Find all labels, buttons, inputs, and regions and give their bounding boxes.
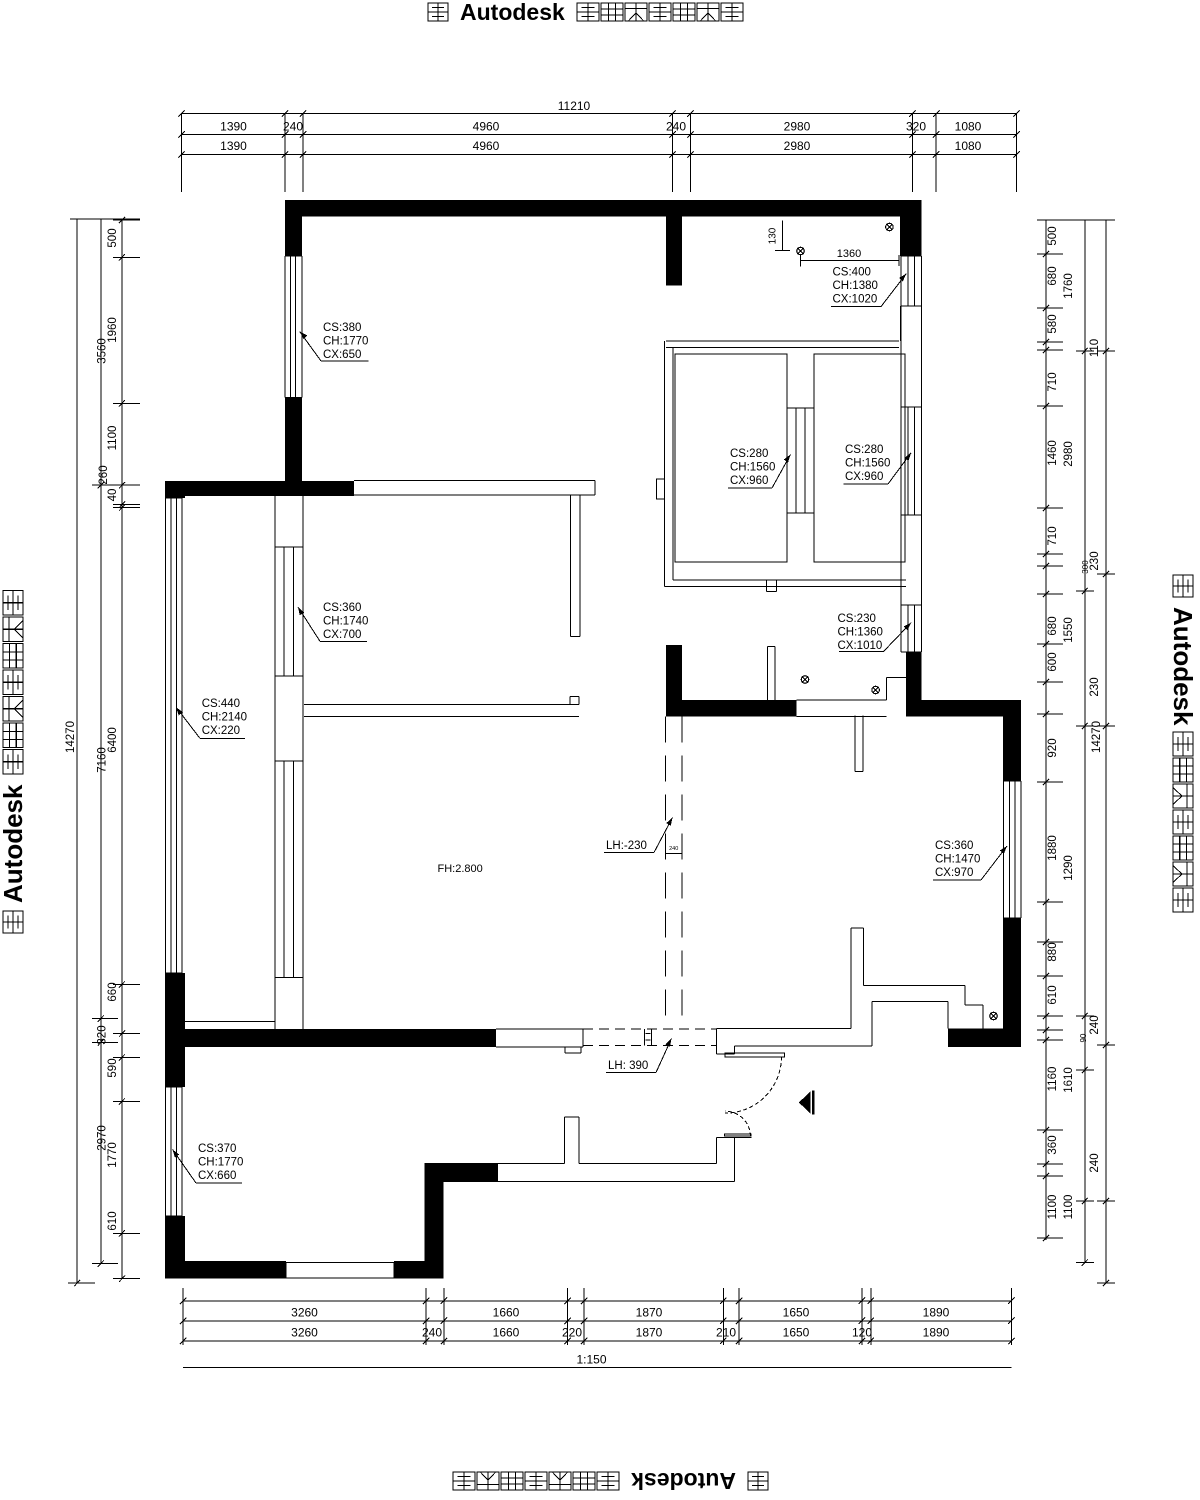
svg-text:1890: 1890 xyxy=(923,1326,950,1340)
svg-text:6400: 6400 xyxy=(107,727,119,753)
svg-text:4960: 4960 xyxy=(473,139,500,153)
svg-text:90: 90 xyxy=(1079,1033,1088,1042)
svg-text:320: 320 xyxy=(906,120,926,134)
svg-text:600: 600 xyxy=(1047,652,1059,671)
svg-text:2980: 2980 xyxy=(1063,441,1075,467)
svg-text:Autodesk: Autodesk xyxy=(631,1468,736,1494)
svg-text:CS:400: CS:400 xyxy=(833,267,871,279)
svg-text:1650: 1650 xyxy=(783,1306,810,1320)
svg-text:660: 660 xyxy=(107,982,119,1001)
svg-text:CS:360: CS:360 xyxy=(323,602,361,614)
svg-text:FH:2.800: FH:2.800 xyxy=(438,863,483,875)
svg-text:710: 710 xyxy=(1047,526,1059,545)
svg-text:CH:1470: CH:1470 xyxy=(935,853,980,865)
svg-text:1870: 1870 xyxy=(636,1326,663,1340)
svg-text:CX:960: CX:960 xyxy=(730,475,768,487)
svg-text:1080: 1080 xyxy=(955,139,982,153)
svg-text:230: 230 xyxy=(1089,551,1101,570)
svg-text:3260: 3260 xyxy=(291,1326,318,1340)
svg-text:CH:1740: CH:1740 xyxy=(323,615,368,627)
svg-text:CH:1560: CH:1560 xyxy=(845,457,890,469)
svg-text:3560: 3560 xyxy=(97,338,109,364)
svg-text:CX:220: CX:220 xyxy=(202,725,240,737)
svg-text:2970: 2970 xyxy=(97,1125,109,1151)
svg-text:130: 130 xyxy=(768,227,779,244)
svg-text:CH:1560: CH:1560 xyxy=(730,461,775,473)
svg-text:1550: 1550 xyxy=(1063,617,1075,643)
svg-text:1890: 1890 xyxy=(923,1306,950,1320)
svg-text:2980: 2980 xyxy=(784,120,811,134)
svg-text:1880: 1880 xyxy=(1047,835,1059,861)
svg-text:CS:380: CS:380 xyxy=(323,322,361,334)
svg-text:CS:440: CS:440 xyxy=(202,698,240,710)
svg-text:590: 590 xyxy=(107,1058,119,1077)
svg-text:240: 240 xyxy=(422,1326,442,1340)
svg-text:CS:360: CS:360 xyxy=(935,840,973,852)
svg-text:320: 320 xyxy=(97,1025,109,1044)
svg-text:240: 240 xyxy=(1089,1015,1101,1034)
svg-text:920: 920 xyxy=(1047,738,1059,757)
svg-text:1660: 1660 xyxy=(493,1326,520,1340)
svg-text:1650: 1650 xyxy=(783,1326,810,1340)
svg-text:CS:230: CS:230 xyxy=(838,613,876,625)
svg-text:7160: 7160 xyxy=(97,747,109,773)
svg-text:40: 40 xyxy=(107,489,119,502)
svg-text:14270: 14270 xyxy=(1091,721,1103,753)
svg-text:CX:960: CX:960 xyxy=(845,471,883,483)
svg-text:LH: 390: LH: 390 xyxy=(608,1060,648,1072)
svg-text:240: 240 xyxy=(1089,1153,1101,1172)
svg-text:500: 500 xyxy=(107,228,119,247)
svg-text:CX:1020: CX:1020 xyxy=(833,293,878,305)
svg-text:240: 240 xyxy=(666,120,686,134)
svg-text:1770: 1770 xyxy=(107,1142,119,1168)
svg-text:3260: 3260 xyxy=(291,1306,318,1320)
svg-text:110: 110 xyxy=(1089,339,1101,357)
svg-text:14270: 14270 xyxy=(65,721,77,753)
svg-text:680: 680 xyxy=(1047,616,1059,635)
svg-text:CX:650: CX:650 xyxy=(323,349,361,361)
svg-text:LH:-230: LH:-230 xyxy=(606,840,647,852)
svg-text:1160: 1160 xyxy=(1047,1067,1059,1092)
svg-text:1290: 1290 xyxy=(1063,855,1075,881)
svg-text:580: 580 xyxy=(1047,314,1059,333)
svg-text:260: 260 xyxy=(98,465,110,484)
svg-text:Autodesk: Autodesk xyxy=(1168,607,1198,726)
svg-text:4960: 4960 xyxy=(473,120,500,134)
svg-text:1080: 1080 xyxy=(955,120,982,134)
svg-text:CX:700: CX:700 xyxy=(323,629,361,641)
svg-text:1100: 1100 xyxy=(107,426,119,451)
svg-text:1390: 1390 xyxy=(220,139,247,153)
svg-text:CS:280: CS:280 xyxy=(730,448,768,460)
svg-text:2980: 2980 xyxy=(784,139,811,153)
svg-text:CH:2140: CH:2140 xyxy=(202,711,247,723)
svg-text:610: 610 xyxy=(1047,985,1059,1004)
svg-text:Autodesk: Autodesk xyxy=(0,784,28,903)
svg-text:1960: 1960 xyxy=(107,317,119,343)
svg-text:CX:1010: CX:1010 xyxy=(838,640,883,652)
svg-text:710: 710 xyxy=(1047,372,1059,391)
svg-text:240: 240 xyxy=(283,120,303,134)
svg-text:230: 230 xyxy=(1089,677,1101,696)
svg-text:880: 880 xyxy=(1047,942,1059,961)
svg-text:CX:660: CX:660 xyxy=(198,1170,236,1182)
svg-text:Autodesk: Autodesk xyxy=(460,0,565,25)
svg-text:CH:1380: CH:1380 xyxy=(833,280,878,292)
svg-text:1100: 1100 xyxy=(1063,1195,1075,1220)
svg-text:300: 300 xyxy=(1081,560,1090,574)
svg-text:CH:1770: CH:1770 xyxy=(198,1156,243,1168)
svg-text:1:150: 1:150 xyxy=(576,1353,606,1367)
svg-text:1610: 1610 xyxy=(1063,1067,1075,1093)
svg-text:1460: 1460 xyxy=(1047,440,1059,466)
svg-text:360: 360 xyxy=(1047,1135,1059,1154)
svg-text:1360: 1360 xyxy=(837,248,861,260)
svg-text:500: 500 xyxy=(1047,226,1059,245)
svg-text:CX:970: CX:970 xyxy=(935,867,973,879)
svg-text:1760: 1760 xyxy=(1063,273,1075,299)
svg-text:11210: 11210 xyxy=(558,99,591,113)
svg-text:240: 240 xyxy=(669,846,678,852)
svg-text:1870: 1870 xyxy=(636,1306,663,1320)
svg-text:1390: 1390 xyxy=(220,120,247,134)
svg-text:CH:1770: CH:1770 xyxy=(323,335,368,347)
svg-text:220: 220 xyxy=(562,1326,582,1340)
svg-text:CS:280: CS:280 xyxy=(845,444,883,456)
svg-text:1660: 1660 xyxy=(493,1306,520,1320)
svg-text:680: 680 xyxy=(1047,266,1059,285)
svg-text:610: 610 xyxy=(107,1211,119,1230)
svg-text:CH:1360: CH:1360 xyxy=(838,626,883,638)
svg-text:1100: 1100 xyxy=(1047,1195,1059,1220)
svg-text:CS:370: CS:370 xyxy=(198,1143,236,1155)
